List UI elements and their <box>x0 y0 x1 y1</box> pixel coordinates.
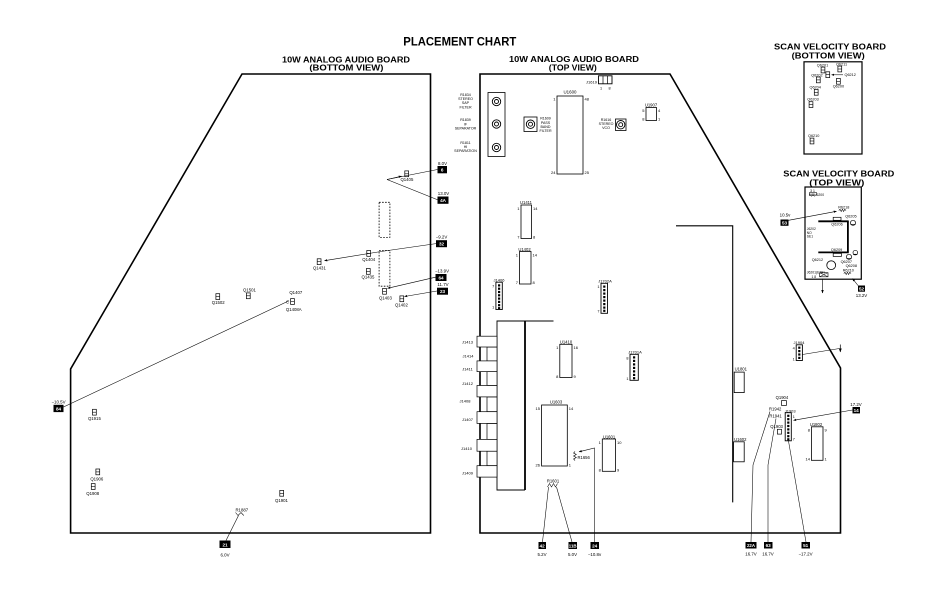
svg-text:51: 51 <box>803 543 809 548</box>
svg-text:Q6212: Q6212 <box>844 73 855 77</box>
svg-text:4A: 4A <box>440 198 447 203</box>
svg-text:Q1404: Q1404 <box>362 257 376 262</box>
svg-text:−17.2V: −17.2V <box>798 552 812 557</box>
svg-text:J1702A: J1702A <box>598 278 612 283</box>
svg-text:J1414: J1414 <box>463 353 475 358</box>
svg-text:−10.5V: −10.5V <box>51 400 65 405</box>
svg-text:Q1901: Q1901 <box>275 498 289 503</box>
svg-text:J1408: J1408 <box>460 399 472 404</box>
svg-text:Q1405: Q1405 <box>400 177 414 182</box>
svg-text:13.0V: 13.0V <box>438 191 450 196</box>
svg-text:SCAN VELOCITY BOARD: SCAN VELOCITY BOARD <box>783 169 894 178</box>
svg-text:J1410: J1410 <box>461 446 473 451</box>
svg-text:Q1403: Q1403 <box>379 295 393 300</box>
svg-text:32: 32 <box>439 242 445 247</box>
svg-text:R1941: R1941 <box>769 414 782 419</box>
svg-text:7: 7 <box>793 438 795 442</box>
svg-text:R6210: R6210 <box>843 268 854 272</box>
svg-text:8: 8 <box>626 357 628 361</box>
svg-text:J1701A: J1701A <box>628 349 642 354</box>
svg-text:U1907: U1907 <box>645 102 658 107</box>
svg-text:5.2V: 5.2V <box>537 552 546 557</box>
svg-text:(BOTTOM VIEW): (BOTTOM VIEW) <box>792 52 865 61</box>
svg-text:Q6209: Q6209 <box>831 248 842 252</box>
svg-text:J1411: J1411 <box>462 366 473 371</box>
svg-text:−9.2V: −9.2V <box>436 235 448 240</box>
svg-text:U1802: U1802 <box>810 422 823 427</box>
svg-text:21: 21 <box>222 542 228 547</box>
svg-text:Q6206: Q6206 <box>831 223 842 227</box>
svg-text:Q1407: Q1407 <box>289 290 303 295</box>
svg-text:1: 1 <box>600 87 602 91</box>
svg-text:1: 1 <box>793 415 795 419</box>
svg-text:R1942: R1942 <box>769 406 782 411</box>
svg-text:PLACEMENT CHART: PLACEMENT CHART <box>403 37 516 49</box>
svg-text:Q6211: Q6211 <box>836 62 847 66</box>
svg-text:52: 52 <box>859 287 865 292</box>
svg-text:FILTER: FILTER <box>539 129 552 133</box>
svg-text:Q1915: Q1915 <box>88 416 102 421</box>
svg-text:1: 1 <box>597 285 599 289</box>
svg-text:16: 16 <box>574 345 579 350</box>
svg-text:8: 8 <box>608 87 610 91</box>
svg-text:1: 1 <box>492 306 494 310</box>
svg-text:14: 14 <box>806 457 811 462</box>
svg-text:6.0V: 6.0V <box>220 553 229 558</box>
svg-text:J1904: J1904 <box>794 340 806 345</box>
svg-text:16.7V: 16.7V <box>762 552 774 557</box>
svg-text:1: 1 <box>626 377 628 381</box>
svg-text:23: 23 <box>440 289 446 294</box>
svg-text:Q1408A: Q1408A <box>286 307 302 312</box>
svg-text:J1409: J1409 <box>462 470 474 475</box>
svg-text:U1603: U1603 <box>550 400 563 405</box>
svg-text:FILTER: FILTER <box>459 105 472 109</box>
svg-text:48: 48 <box>585 97 590 102</box>
svg-text:U1801: U1801 <box>735 367 748 372</box>
svg-text:J1407: J1407 <box>462 417 474 422</box>
svg-text:24: 24 <box>551 170 556 175</box>
svg-text:R1656: R1656 <box>578 455 591 460</box>
svg-text:U1402: U1402 <box>518 247 531 252</box>
svg-text:U1410: U1410 <box>560 340 573 345</box>
svg-text:SEPARATOR: SEPARATOR <box>455 127 477 131</box>
svg-text:VCO: VCO <box>602 126 610 130</box>
svg-text:(TOP VIEW): (TOP VIEW) <box>549 64 597 73</box>
svg-text:15: 15 <box>536 406 541 411</box>
svg-text:14: 14 <box>533 253 538 258</box>
svg-text:64: 64 <box>438 275 444 280</box>
svg-text:SEPARATION: SEPARATION <box>454 149 477 153</box>
svg-text:Q1906: Q1906 <box>90 476 104 481</box>
svg-text:J1412: J1412 <box>462 381 474 386</box>
svg-text:84: 84 <box>56 406 62 411</box>
svg-text:R1601: R1601 <box>547 479 560 484</box>
svg-text:10: 10 <box>617 440 622 445</box>
svg-text:(BOTTOM VIEW): (BOTTOM VIEW) <box>309 64 383 73</box>
svg-text:Q1431: Q1431 <box>313 266 327 271</box>
svg-text:8.0V: 8.0V <box>438 161 447 166</box>
svg-text:U1411: U1411 <box>520 200 533 205</box>
svg-text:Q6212: Q6212 <box>812 258 823 262</box>
svg-text:42: 42 <box>540 544 546 549</box>
svg-text:7: 7 <box>597 310 599 314</box>
svg-text:63: 63 <box>766 543 772 548</box>
svg-text:22A: 22A <box>747 543 756 548</box>
svg-text:16.7V: 16.7V <box>745 552 757 557</box>
svg-text:53: 53 <box>782 221 788 226</box>
svg-text:Q6203: Q6203 <box>807 98 818 102</box>
svg-text:Q1908: Q1908 <box>86 491 100 496</box>
svg-text:1: 1 <box>793 358 795 362</box>
svg-text:Q1903: Q1903 <box>770 424 783 429</box>
svg-text:U1602: U1602 <box>734 437 747 442</box>
svg-text:11B: 11B <box>569 544 577 549</box>
svg-text:25: 25 <box>585 170 590 175</box>
svg-text:SCAN VELOCITY BOARD: SCAN VELOCITY BOARD <box>774 43 886 52</box>
svg-text:Q6205: Q6205 <box>845 215 856 219</box>
svg-text:J1413: J1413 <box>462 339 474 344</box>
svg-text:6: 6 <box>441 168 444 173</box>
svg-text:J1406: J1406 <box>494 278 506 283</box>
svg-text:Q1402: Q1402 <box>395 303 409 308</box>
svg-text:10.5v: 10.5v <box>780 213 792 218</box>
svg-text:Q1435: Q1435 <box>362 275 376 280</box>
svg-text:−10.8v: −10.8v <box>588 552 602 557</box>
svg-text:13.2V: 13.2V <box>856 293 868 298</box>
svg-text:Q1502: Q1502 <box>212 300 226 305</box>
svg-text:Q1904: Q1904 <box>776 395 789 400</box>
svg-text:26: 26 <box>536 462 541 467</box>
svg-text:17.2V: 17.2V <box>850 402 862 407</box>
svg-text:J1619: J1619 <box>586 80 598 85</box>
svg-text:Q1501: Q1501 <box>243 287 257 292</box>
svg-text:11.7V: 11.7V <box>437 282 448 287</box>
svg-text:14: 14 <box>569 406 574 411</box>
svg-text:7: 7 <box>492 285 494 289</box>
svg-text:1 8: 1 8 <box>812 275 817 279</box>
svg-text:6(B)-6200: 6(B)-6200 <box>809 193 824 197</box>
svg-text:14: 14 <box>533 206 538 211</box>
svg-text:Q6210: Q6210 <box>808 134 819 138</box>
svg-text:4: 4 <box>793 347 795 351</box>
svg-text:U1600: U1600 <box>564 90 577 95</box>
svg-text:(TOP VIEW): (TOP VIEW) <box>809 179 864 188</box>
svg-text:14: 14 <box>854 408 860 413</box>
svg-text:24: 24 <box>592 544 598 549</box>
svg-text:SE1: SE1 <box>807 234 813 238</box>
svg-text:5.0V: 5.0V <box>568 552 577 557</box>
svg-text:−13.9V: −13.9V <box>435 268 449 273</box>
svg-text:R1887: R1887 <box>235 508 248 513</box>
svg-text:Q6200: Q6200 <box>833 85 844 89</box>
